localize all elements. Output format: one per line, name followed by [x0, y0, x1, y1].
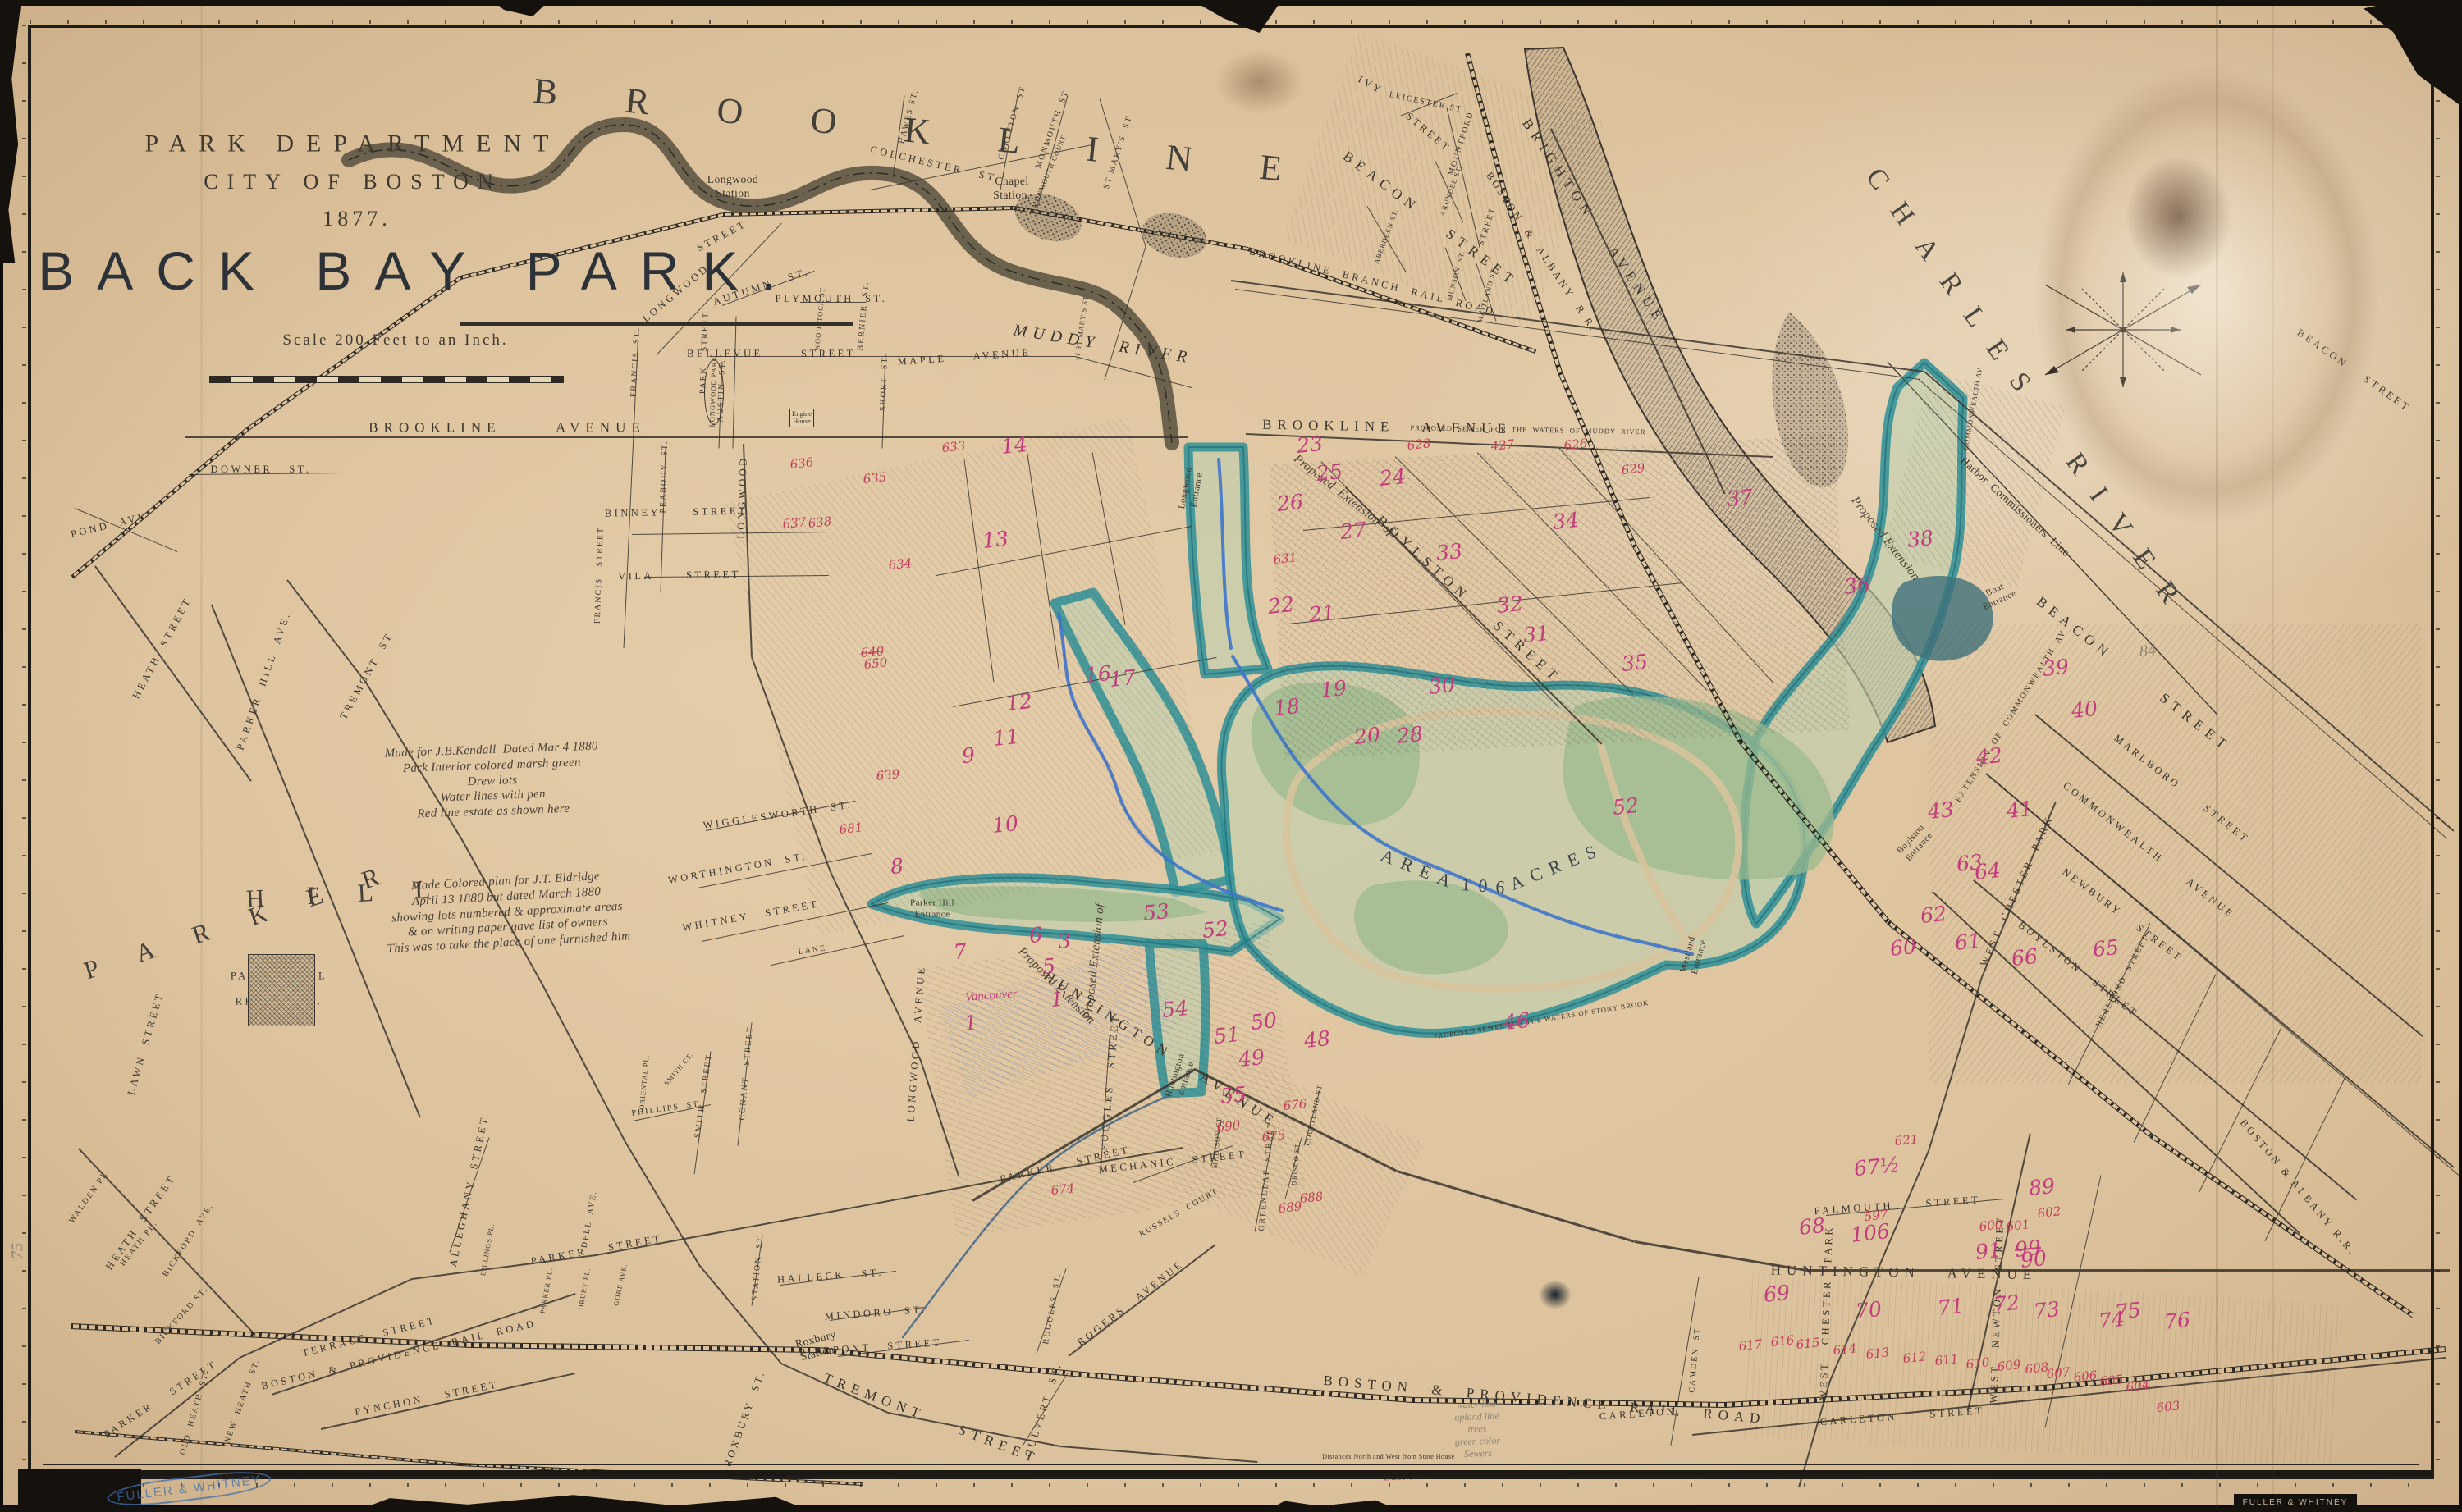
border-ticks-right — [2436, 25, 2440, 1479]
map-canvas: B R O O K L I N ECHARLES RIVERHarbor Com… — [0, 0, 2462, 1512]
fold-crease — [2216, 0, 2218, 1512]
frame-heavy-rule — [30, 1470, 2432, 1476]
maker-label-box: FULLER & WHITNEY — [2234, 1494, 2357, 1510]
border-ticks-bottom — [30, 1483, 2432, 1487]
fold-crease-2 — [2272, 0, 2274, 1512]
edge-damage-bottom — [0, 1507, 2462, 1512]
fold-crease-3 — [200, 0, 203, 1512]
map-frame-inner — [43, 39, 2419, 1465]
border-ticks-left — [22, 25, 26, 1479]
